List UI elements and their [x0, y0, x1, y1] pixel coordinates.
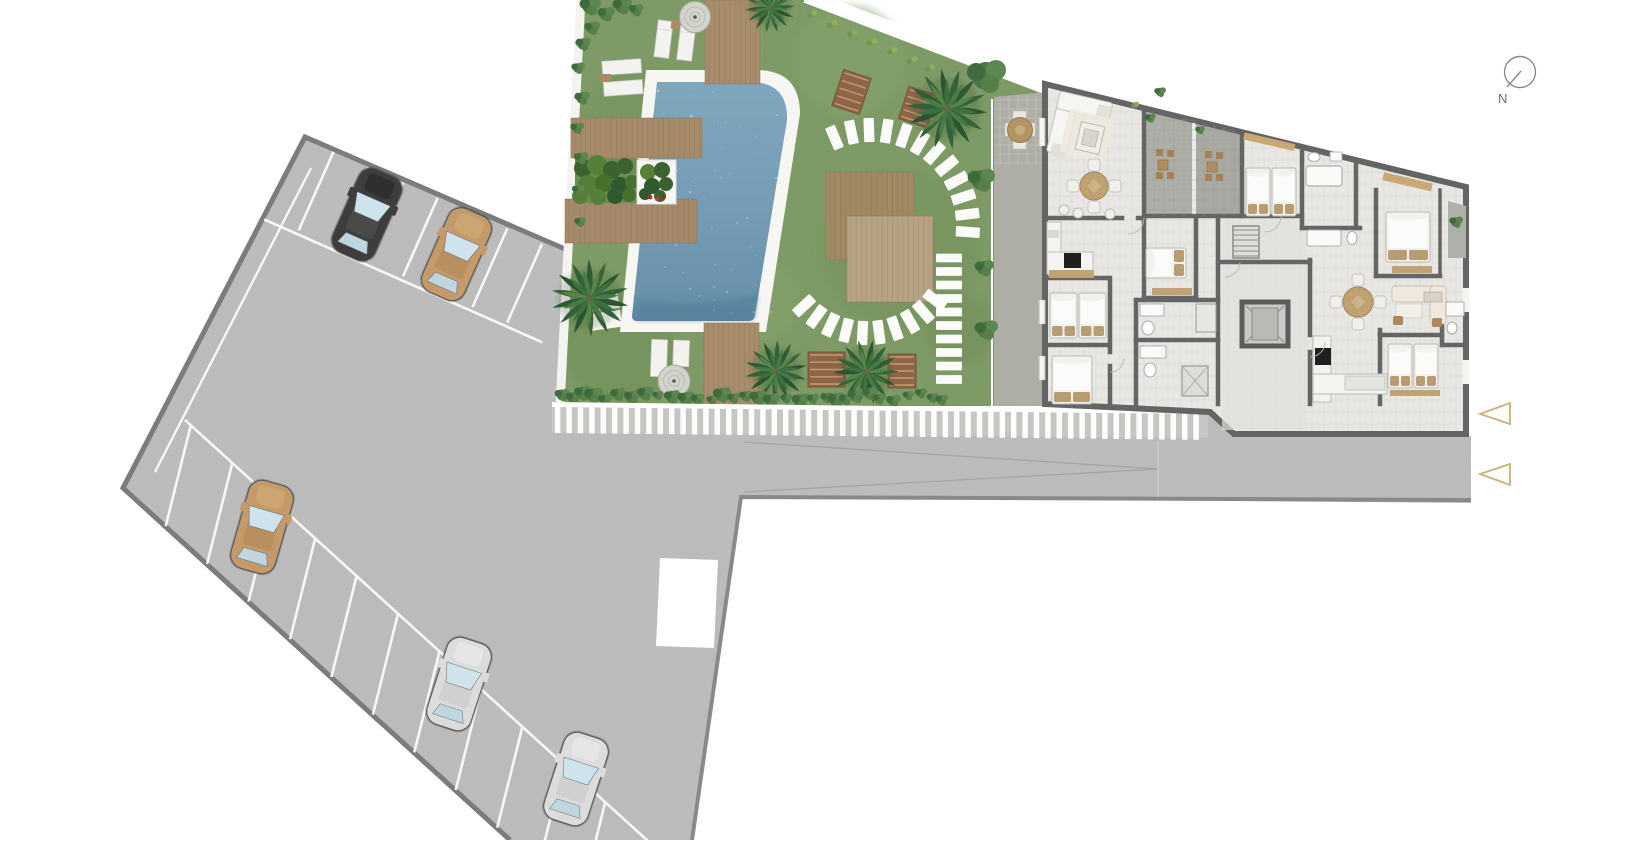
svg-text:N: N — [1498, 91, 1507, 106]
